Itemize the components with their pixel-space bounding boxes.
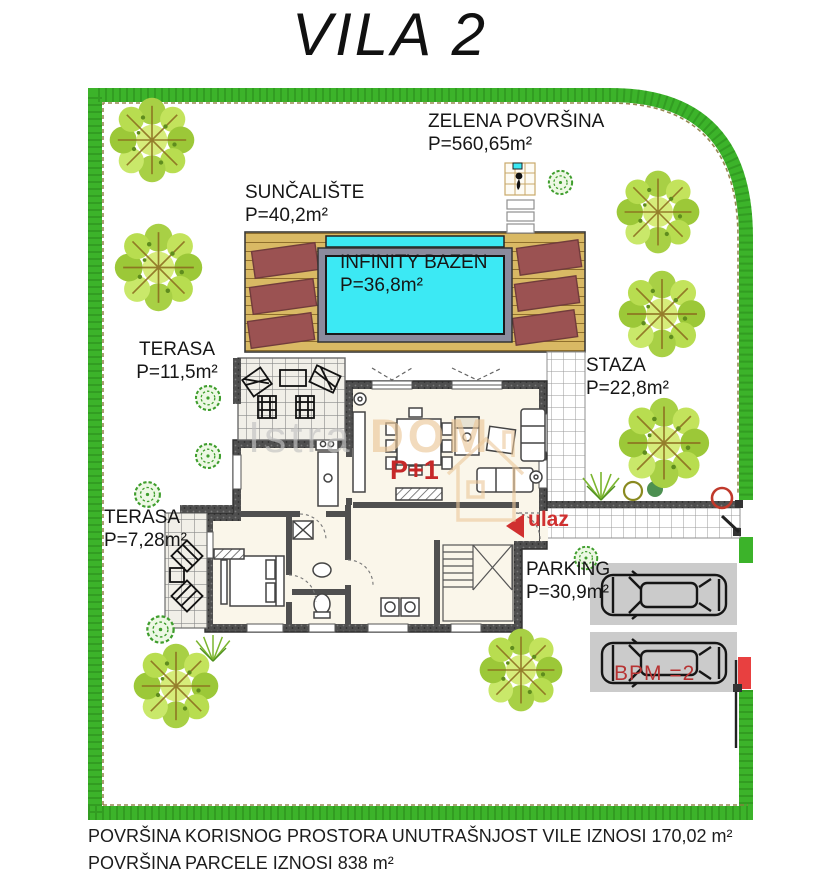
label-text: TERASA (104, 506, 187, 529)
tree-icon (134, 644, 219, 729)
tree-icon (619, 398, 709, 488)
plan-title: VILA 2 (190, 0, 590, 69)
label-infinity-bazen: INFINITY BAZEN P=36,8m² (340, 251, 487, 297)
grass-icon (583, 472, 619, 500)
label-area: P=36,8m² (340, 274, 487, 297)
label-ulaz: ulaz (528, 508, 569, 532)
label-text: PARKING (526, 558, 610, 581)
site-plan: VILA 2 ZELENA POVRŠINA P=560,65m² SUNČAL… (0, 0, 830, 891)
pool-steps (507, 200, 534, 233)
label-text: ZELENA POVRŠINA (428, 110, 604, 133)
label-staza: STAZA P=22,8m² (586, 354, 669, 400)
label-area: P=30,9m² (526, 581, 610, 604)
bush-icon (147, 616, 173, 642)
plant-icon (624, 482, 642, 500)
label-text: STAZA (586, 354, 669, 377)
watermark: Istra DOM (248, 408, 491, 463)
tree-icon (110, 98, 195, 183)
watermark-first: Istra (248, 413, 354, 462)
label-zelena-povrsina: ZELENA POVRŠINA P=560,65m² (428, 110, 604, 156)
label-bpm: BPM =2 (614, 662, 695, 686)
parking-area (590, 563, 751, 748)
label-floor: P+1 (390, 455, 439, 486)
label-area: P=22,8m² (586, 377, 669, 400)
tree-icon (115, 224, 202, 311)
tree-icon (617, 171, 700, 254)
footer-line2: POVRŠINA PARCELE IZNOSI 838 m² (88, 850, 733, 877)
bush-icon (549, 171, 572, 194)
bush-icon (196, 386, 220, 410)
label-text: TERASA (112, 338, 242, 361)
label-text: SUNČALIŠTE (245, 181, 364, 204)
label-area: P=560,65m² (428, 133, 604, 156)
label-terasa-gornja: TERASA P=11,5m² (112, 338, 242, 384)
bush-icon (135, 482, 160, 507)
footer-line1: POVRŠINA KORISNOG PROSTORA UNUTRAŠNJOST … (88, 823, 733, 850)
label-text: INFINITY BAZEN (340, 251, 487, 274)
label-terasa-donja: TERASA P=7,28m² (104, 506, 187, 552)
label-area: P=11,5m² (112, 361, 242, 384)
label-area: P=40,2m² (245, 204, 364, 227)
label-suncaliste: SUNČALIŠTE P=40,2m² (245, 181, 364, 227)
tree-icon (619, 271, 705, 357)
bush-icon (196, 444, 220, 468)
label-parking: PARKING P=30,9m² (526, 558, 610, 604)
tree-icon (480, 629, 563, 712)
footer-notes: POVRŠINA KORISNOG PROSTORA UNUTRAŠNJOST … (88, 823, 733, 877)
label-area: P=7,28m² (104, 529, 187, 552)
stairs-icon (443, 545, 513, 621)
outdoor-shower-icon (505, 163, 535, 195)
